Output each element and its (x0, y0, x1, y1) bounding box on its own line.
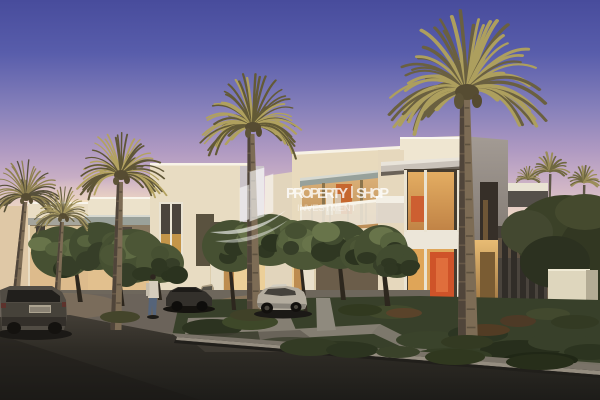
svg-text:PROPERTY: PROPERTY (286, 186, 348, 202)
svg-text:INVESTMENT: INVESTMENT (297, 203, 358, 214)
svg-text:SHOP: SHOP (356, 186, 389, 202)
